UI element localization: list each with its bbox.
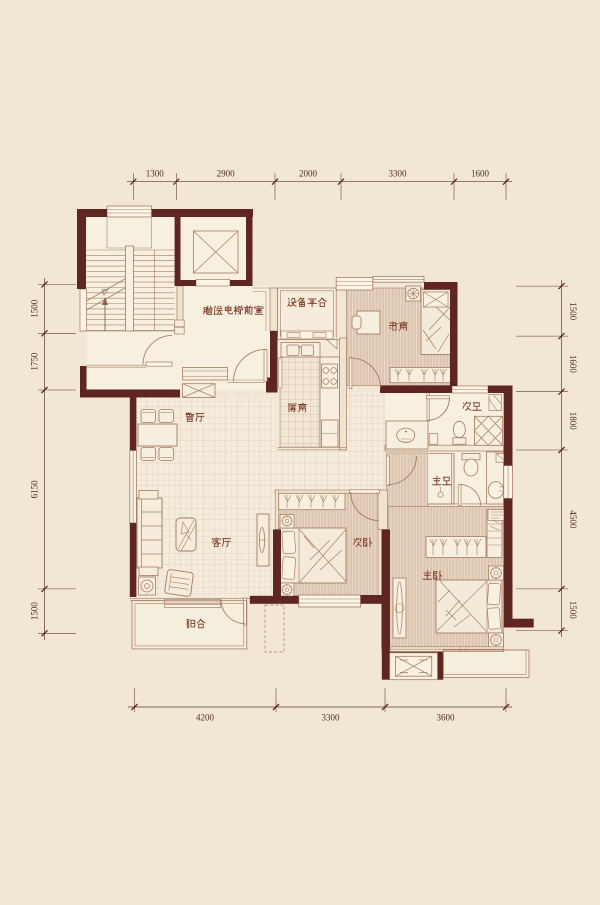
svg-text:1500: 1500 xyxy=(568,601,578,620)
svg-text:3600: 3600 xyxy=(437,713,456,723)
svg-text:3300: 3300 xyxy=(389,169,408,179)
svg-text:3300: 3300 xyxy=(322,713,341,723)
svg-text:4500: 4500 xyxy=(568,510,578,529)
svg-text:1500: 1500 xyxy=(30,602,40,621)
svg-text:2900: 2900 xyxy=(217,169,236,179)
svg-text:1750: 1750 xyxy=(30,352,40,371)
svg-text:2000: 2000 xyxy=(299,169,318,179)
svg-text:4200: 4200 xyxy=(196,713,215,723)
svg-text:6150: 6150 xyxy=(30,480,40,499)
svg-text:1500: 1500 xyxy=(30,299,40,318)
svg-text:1600: 1600 xyxy=(568,355,578,374)
svg-text:1500: 1500 xyxy=(568,302,578,321)
svg-text:1300: 1300 xyxy=(146,169,165,179)
svg-text:1800: 1800 xyxy=(568,412,578,431)
svg-text:1600: 1600 xyxy=(471,169,490,179)
